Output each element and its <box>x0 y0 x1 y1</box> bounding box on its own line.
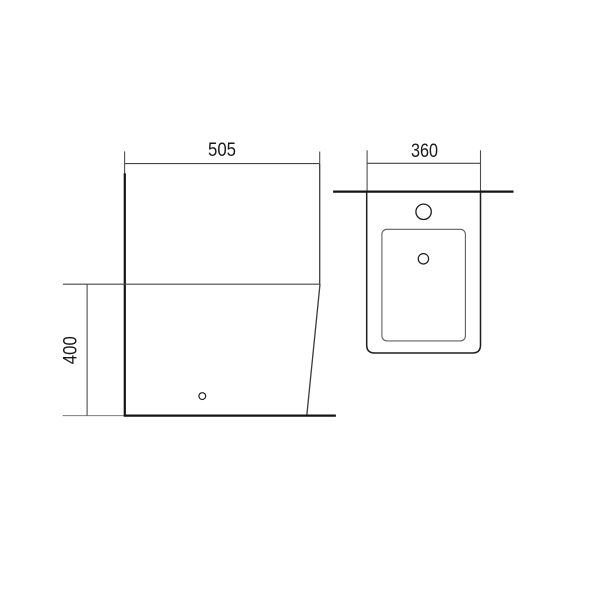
svg-text:400: 400 <box>59 336 81 364</box>
svg-text:505: 505 <box>208 139 236 161</box>
svg-text:360: 360 <box>411 140 438 162</box>
